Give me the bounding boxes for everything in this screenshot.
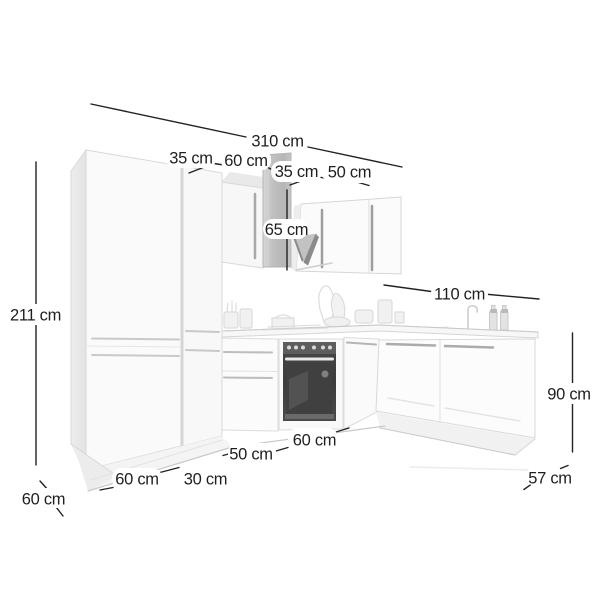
svg-text:60 cm: 60 cm [22,491,65,509]
svg-text:35 cm: 35 cm [275,163,318,181]
svg-text:310 cm: 310 cm [251,133,303,151]
svg-text:65 cm: 65 cm [265,221,308,239]
svg-text:60 cm: 60 cm [224,152,267,170]
svg-text:35 cm: 35 cm [169,150,212,168]
svg-text:50 cm: 50 cm [229,446,272,464]
svg-text:110 cm: 110 cm [434,286,485,304]
svg-text:57 cm: 57 cm [528,470,571,488]
svg-text:60 cm: 60 cm [293,432,336,450]
svg-text:60 cm: 60 cm [115,471,158,489]
svg-text:211 cm: 211 cm [10,307,61,325]
svg-text:30 cm: 30 cm [184,471,227,489]
svg-text:90 cm: 90 cm [547,386,590,404]
svg-text:50 cm: 50 cm [328,164,371,182]
